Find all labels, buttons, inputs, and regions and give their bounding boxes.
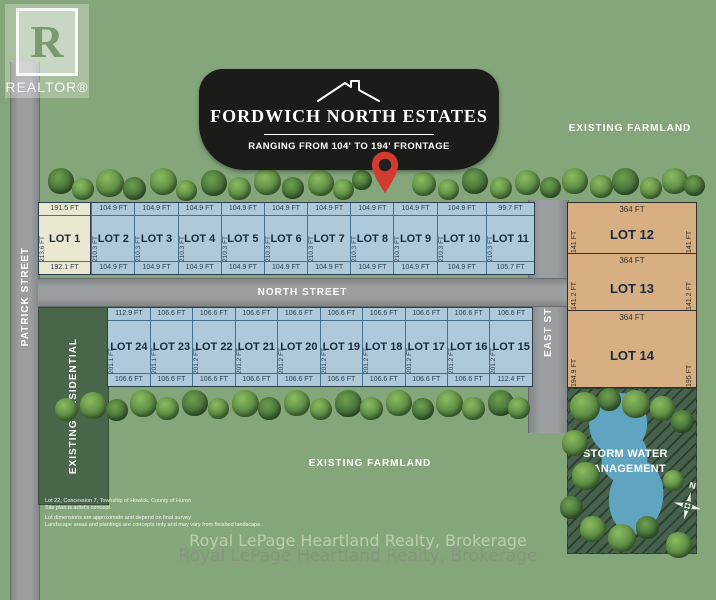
tree-icon	[562, 430, 588, 456]
lot-rear-dim: 106.6 FT	[278, 373, 319, 386]
patrick-street-road: PATRICK STREET	[10, 62, 40, 600]
tree-icon	[671, 410, 694, 433]
lot-rear-dim: 106.6 FT	[108, 373, 150, 386]
lot-depth-dim: 210.3 FT	[179, 215, 186, 262]
realtor-logo-box: R	[16, 8, 78, 76]
lot-depth-dim: 210.3 FT	[351, 215, 358, 262]
lot-rear-dim: 104.9 FT	[179, 261, 221, 274]
lot-lot-16: 106.6 FTLOT 16106.6 FT201.2 FT	[447, 308, 489, 386]
lot-lot-6: 104.9 FTLOT 6104.9 FT210.3 FT	[264, 203, 307, 274]
tree-icon	[182, 390, 208, 416]
lot-depth-dim: 201.2 FT	[490, 320, 497, 374]
lot-depth-dim-left: 141 FT	[571, 203, 578, 253]
lot-rear-dim: 192.1 FT	[39, 261, 90, 274]
lot-depth-dim: 210.3 FT	[308, 215, 315, 262]
tree-icon	[352, 170, 372, 190]
development-title: FORDWICH NORTH ESTATES	[210, 106, 488, 127]
patrick-street-label-wrap: PATRICK STREET	[11, 62, 39, 600]
disclaimer-line: Site plan is artist's concept.	[45, 505, 262, 512]
lot-depth-dim: 213.6 FT	[39, 215, 46, 262]
tree-icon	[562, 168, 588, 194]
lot-rear-dim: 106.6 FT	[193, 373, 234, 386]
lot-rear-dim: 104.9 FT	[135, 261, 177, 274]
tree-icon	[310, 398, 332, 420]
lot-front-dim: 364 FT	[568, 203, 696, 216]
lot-lot-17: 106.6 FTLOT 17106.6 FT201.2 FT	[405, 308, 447, 386]
lot-front-dim: 364 FT	[568, 311, 696, 324]
lot-rear-dim: 104.9 FT	[92, 261, 134, 274]
tree-icon	[106, 399, 128, 421]
disclaimer-text: Lot 22, Concession 7, Township of Howick…	[45, 498, 262, 530]
tree-icon	[176, 180, 197, 201]
lot-depth-dim: 210.3 FT	[394, 215, 401, 262]
lot-depth-dim: 210.3 FT	[222, 215, 229, 262]
lot-name-label: LOT 1	[39, 216, 90, 261]
realtor-logo: R REALTOR®	[5, 4, 89, 98]
title-banner: FORDWICH NORTH ESTATES RANGING FROM 104'…	[199, 69, 499, 170]
lot-lot-13: 364 FTLOT 13141.2 FT141.2 FT	[568, 253, 696, 310]
tree-icon	[208, 398, 229, 419]
top-lot-row: 191.5 FTLOT 1192.1 FT213.6 FT104.9 FTLOT…	[38, 202, 535, 275]
brokerage-watermark-2: Royal LePage Heartland Realty, Brokerage	[0, 546, 716, 566]
tree-icon	[48, 168, 74, 194]
lot-name-label: LOT 13	[568, 267, 696, 310]
lot-rear-dim: 105.7 FT	[487, 261, 534, 274]
tree-icon	[80, 392, 107, 419]
tree-icon	[308, 170, 334, 196]
disclaimer-line: Landscape areas and plantings are concep…	[45, 522, 262, 529]
tree-icon	[684, 175, 705, 196]
lot-lot-24: 112.9 FTLOT 24106.6 FT201.1 FT	[108, 308, 150, 386]
east-lot-column: 364 FTLOT 12141 FT141 FT364 FTLOT 13141.…	[567, 202, 697, 388]
tree-icon	[360, 397, 383, 420]
lot-lot-21: 106.6 FTLOT 21106.6 FT201.2 FT	[235, 308, 277, 386]
lot-depth-dim: 201.1 FT	[151, 320, 158, 374]
tree-icon	[612, 168, 639, 195]
disclaimer-line: Lot 22, Concession 7, Township of Howick…	[45, 498, 262, 505]
site-plan-canvas: PATRICK STREET EAST STREET NORTH STREET …	[0, 0, 716, 600]
tree-icon	[412, 172, 436, 196]
patrick-street-label: PATRICK STREET	[20, 247, 31, 346]
tree-icon	[490, 177, 512, 199]
tree-icon	[572, 462, 600, 490]
lot-rear-dim: 106.6 FT	[151, 373, 192, 386]
tree-icon	[436, 390, 463, 417]
tree-icon	[232, 390, 259, 417]
lot-lot-20: 106.6 FTLOT 20106.6 FT201.2 FT	[277, 308, 319, 386]
lot-depth-dim: 201.2 FT	[406, 320, 413, 374]
north-street-label: NORTH STREET	[258, 287, 348, 298]
tree-icon	[72, 178, 94, 200]
lot-lot-15: 106.6 FTLOT 15112.4 FT201.2 FT	[489, 308, 531, 386]
realtor-r-icon: R	[30, 19, 63, 65]
tree-icon	[258, 397, 281, 420]
tree-icon	[598, 388, 621, 411]
lot-lot-8: 104.9 FTLOT 8104.9 FT210.3 FT	[350, 203, 393, 274]
lot-depth-dim: 210.3 FT	[438, 215, 445, 262]
lot-lot-5: 104.9 FTLOT 5104.9 FT210.3 FT	[221, 203, 264, 274]
lot-lot-18: 106.6 FTLOT 18106.6 FT201.2 FT	[362, 308, 404, 386]
tree-icon	[508, 397, 530, 419]
tree-icon	[228, 177, 251, 200]
lot-lot-2: 104.9 FTLOT 2104.9 FT210.3 FT	[91, 203, 134, 274]
lot-lot-12: 364 FTLOT 12141 FT141 FT	[568, 203, 696, 253]
tree-icon	[515, 170, 540, 195]
lot-name-label: LOT 14	[568, 324, 696, 387]
lot-rear-dim: 106.6 FT	[363, 373, 404, 386]
lot-lot-7: 104.9 FTLOT 7104.9 FT210.3 FT	[307, 203, 350, 274]
tree-icon	[156, 397, 179, 420]
lot-depth-dim: 210.3 FT	[487, 215, 494, 262]
lot-lot-4: 104.9 FTLOT 4104.9 FT210.3 FT	[178, 203, 221, 274]
lot-rear-dim: 112.4 FT	[490, 373, 531, 386]
tree-icon	[335, 390, 362, 417]
lot-name-label: LOT 12	[568, 216, 696, 253]
lot-depth-dim: 201.1 FT	[108, 320, 115, 374]
frontage-subtitle: RANGING FROM 104' TO 194' FRONTAGE	[248, 141, 449, 152]
lot-depth-dim-left: 194.9 FT	[571, 311, 578, 387]
tree-icon	[254, 168, 281, 195]
lot-rear-dim: 104.9 FT	[265, 261, 307, 274]
lot-lot-10: 104.9 FTLOT 10104.9 FT210.3 FT	[437, 203, 486, 274]
lot-front-dim: 191.5 FT	[39, 203, 90, 216]
lot-lot-11: 99.7 FTLOT 11105.7 FT210.3 FT	[486, 203, 534, 274]
tree-icon	[333, 179, 354, 200]
tree-icon	[412, 398, 434, 420]
lot-depth-dim: 210.3 FT	[135, 215, 142, 262]
north-street-road: NORTH STREET	[38, 278, 567, 307]
tree-icon	[640, 177, 662, 199]
lot-lot-1: 191.5 FTLOT 1192.1 FT213.6 FT	[39, 203, 91, 274]
tree-icon	[130, 390, 157, 417]
lot-lot-14: 364 FTLOT 14194.9 FT195 FT	[568, 310, 696, 387]
lot-depth-dim: 201.2 FT	[448, 320, 455, 374]
lot-depth-dim-right: 141.2 FT	[686, 254, 693, 310]
tree-icon	[462, 397, 485, 420]
lot-depth-dim: 210.3 FT	[265, 215, 272, 262]
existing-farmland-label-bottom: EXISTING FARMLAND	[290, 458, 450, 469]
tree-icon	[570, 392, 600, 422]
tree-icon	[284, 390, 310, 416]
realtor-logo-label: REALTOR®	[5, 79, 88, 95]
lot-rear-dim: 106.6 FT	[236, 373, 277, 386]
disclaimer-line: Lot dimensions are approximate and depen…	[45, 515, 262, 522]
compass-rose-icon	[669, 488, 705, 524]
tree-icon	[438, 179, 459, 200]
lot-front-dim: 364 FT	[568, 254, 696, 267]
lot-rear-dim: 106.6 FT	[406, 373, 447, 386]
lot-rear-dim: 104.9 FT	[438, 261, 486, 274]
roof-icon	[314, 78, 384, 104]
banner-divider	[264, 134, 434, 135]
tree-icon	[55, 398, 78, 421]
lot-rear-dim: 104.9 FT	[394, 261, 436, 274]
tree-icon	[540, 177, 561, 198]
tree-icon	[96, 169, 124, 197]
existing-farmland-label-top: EXISTING FARMLAND	[555, 123, 705, 134]
lot-rear-dim: 104.9 FT	[351, 261, 393, 274]
lot-depth-dim: 201.2 FT	[193, 320, 200, 374]
tree-icon	[150, 168, 177, 195]
tree-icon	[282, 177, 304, 199]
lot-lot-23: 106.6 FTLOT 23106.6 FT201.1 FT	[150, 308, 192, 386]
lot-depth-dim-right: 195 FT	[686, 311, 693, 387]
lot-rear-dim: 104.9 FT	[222, 261, 264, 274]
lot-rear-dim: 104.9 FT	[308, 261, 350, 274]
lot-depth-dim: 210.3 FT	[92, 215, 99, 262]
tree-icon	[386, 390, 412, 416]
lot-rear-dim: 106.6 FT	[321, 373, 362, 386]
lot-rear-dim: 106.6 FT	[448, 373, 489, 386]
lot-lot-22: 106.6 FTLOT 22106.6 FT201.2 FT	[192, 308, 234, 386]
tree-icon	[462, 168, 488, 194]
lot-depth-dim: 201.2 FT	[321, 320, 328, 374]
lot-lot-9: 104.9 FTLOT 9104.9 FT210.3 FT	[393, 203, 436, 274]
lot-depth-dim: 201.2 FT	[278, 320, 285, 374]
lot-depth-dim: 201.2 FT	[236, 320, 243, 374]
tree-icon	[590, 175, 613, 198]
bottom-lot-row: 112.9 FTLOT 24106.6 FT201.1 FT106.6 FTLO…	[107, 307, 533, 387]
tree-icon	[201, 170, 227, 196]
lot-lot-19: 106.6 FTLOT 19106.6 FT201.2 FT	[320, 308, 362, 386]
lot-depth-dim: 201.2 FT	[363, 320, 370, 374]
tree-icon	[123, 177, 146, 200]
lot-depth-dim-left: 141.2 FT	[571, 254, 578, 310]
tree-icon	[622, 390, 650, 418]
north-street-label-wrap: NORTH STREET	[38, 279, 567, 306]
lot-lot-3: 104.9 FTLOT 3104.9 FT210.3 FT	[134, 203, 177, 274]
location-pin-icon	[370, 150, 400, 196]
lot-depth-dim-right: 141 FT	[686, 203, 693, 253]
tree-icon	[560, 496, 583, 519]
